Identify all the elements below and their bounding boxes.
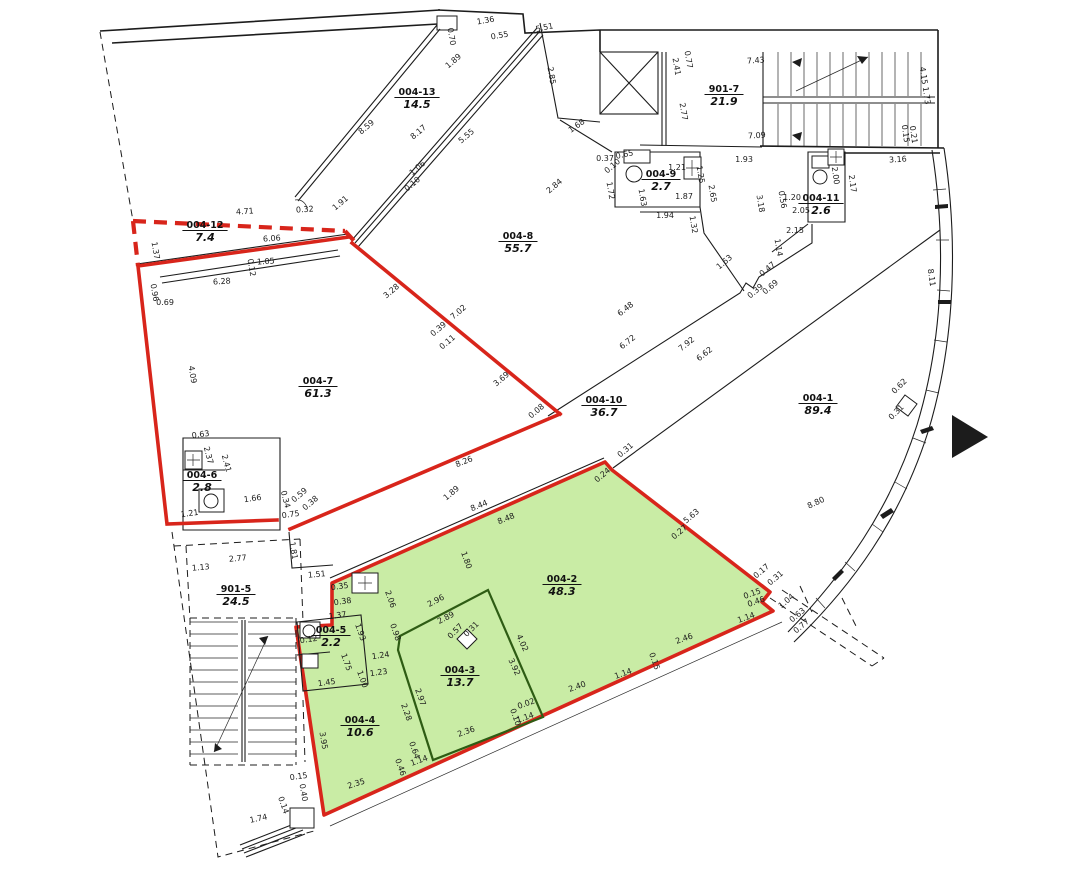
toilet-tank [302,654,318,668]
dimension-label: 1.94 [656,211,674,220]
room-area: 89.4 [804,404,831,417]
room-area: 7.4 [195,231,215,244]
room-number: 004-4 [345,715,376,726]
room-area: 10.6 [346,726,373,739]
dimension-label: 1.51 [308,569,327,580]
room-number: 004-5 [316,625,346,636]
dimension-label: 0.69 [156,298,174,307]
room-number: 004-2 [547,574,577,585]
dimension-label: 7.09 [748,131,766,141]
dimension-label: 0.32 [296,204,314,214]
dimension-label: 1.13 [192,562,211,573]
dimension-label: 1.93 [735,155,753,164]
dimension-label: 7.43 [747,55,765,65]
room-area: 2.6 [811,204,831,217]
dimension-label: 6.28 [213,276,231,286]
sink [812,156,829,168]
room-number: 901-5 [221,584,251,595]
toilet [813,170,827,184]
room-number: 004-11 [803,193,840,204]
room-number: 004-3 [445,665,475,676]
room-area: 24.5 [222,595,249,608]
room-area: 55.7 [504,242,531,255]
dimension-label: 1.20 [783,193,801,202]
room-area: 13.7 [446,676,473,689]
room-number: 901-7 [709,84,739,95]
room-number: 004-1 [803,393,833,404]
dimension-label: 1.05 [257,256,275,266]
room-area: 14.5 [403,98,430,111]
dimension-label: 6.06 [263,233,281,243]
floor-plan-canvas: 4.710.326.066.281.050.121.370.960.694.09… [0,0,1078,882]
room-number: 004-8 [503,231,534,242]
room-area: 2.7 [651,180,671,193]
room-number: 004-10 [586,395,623,406]
dimension-label: 2.77 [229,553,248,564]
room-number: 004-12 [187,220,224,231]
room-number: 004-9 [646,169,676,180]
room-number: 004-7 [303,376,333,387]
room-number: 004-13 [399,87,436,98]
room-area: 48.3 [547,585,575,598]
room-area: 36.7 [590,406,617,419]
toilet [626,166,642,182]
dimension-label: 4.71 [236,206,254,216]
dimension-label: 2.15 [786,226,804,235]
room-area: 21.9 [710,95,737,108]
dimension-label: 3.16 [889,155,907,165]
dimension-label: 1.87 [675,192,693,201]
dimension-label: 2.05 [792,206,810,215]
room-number: 004-6 [187,470,218,481]
room-area: 61.3 [304,387,331,400]
room-area: 2.2 [321,636,341,649]
room-area: 2.8 [192,481,212,494]
